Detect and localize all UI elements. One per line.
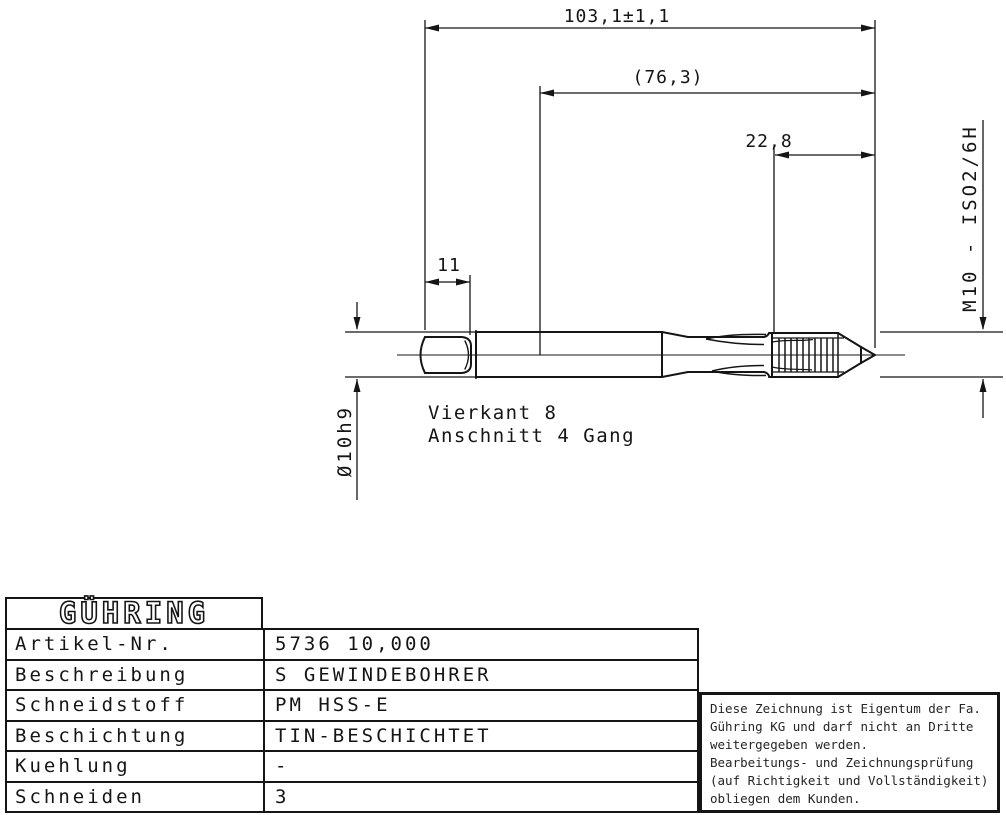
ownership-note: Diese Zeichnung ist Eigentum der Fa. Güh… [699,692,1000,813]
row-value: 5736 10,000 [263,630,697,659]
note-line: Diese Zeichnung ist Eigentum der Fa. [710,700,997,718]
spec-table-grid: Artikel-Nr. 5736 10,000 Beschreibung S G… [5,628,699,813]
row-label: Beschreibung [7,661,263,690]
dim-thread-spec: M10 - ISO2/6H [959,124,981,312]
note-line: Bearbeitungs- und Zeichnungsprüfung [710,754,997,772]
table-row: Kuehlung - [7,750,697,781]
row-value: TIN-BESCHICHTET [263,722,697,751]
row-label: Artikel-Nr. [7,630,263,659]
technical-drawing: 103,1±1,1 (76,3) 22,8 11 M10 - ISO2/6H Ø… [0,0,1006,590]
table-row: Beschreibung S GEWINDEBOHRER [7,659,697,690]
dim-square-length: 11 [437,255,461,276]
spec-table: GÜHRING Artikel-Nr. 5736 10,000 Beschrei… [5,597,699,813]
drawing-sheet: 103,1±1,1 (76,3) 22,8 11 M10 - ISO2/6H Ø… [0,0,1006,815]
row-value: PM HSS-E [263,691,697,720]
table-row: Beschichtung TIN-BESCHICHTET [7,720,697,751]
dim-overall-length: 103,1±1,1 [564,6,671,27]
dim-reference-length: (76,3) [632,67,703,88]
row-value: S GEWINDEBOHRER [263,661,697,690]
row-label: Beschichtung [7,722,263,751]
dim-thread-length: 22,8 [745,131,792,152]
row-label: Schneiden [7,783,263,812]
table-row: Schneidstoff PM HSS-E [7,689,697,720]
row-value: - [263,752,697,781]
row-value: 3 [263,783,697,812]
note-line: weitergegeben werden. [710,736,997,754]
table-row: Artikel-Nr. 5736 10,000 [7,630,697,659]
guehring-logo-box: GÜHRING [5,597,263,630]
dim-shank-diameter: Ø10h9 [334,405,356,477]
table-row: Schneiden 3 [7,781,697,812]
note-line: obliegen dem Kunden. [710,790,997,808]
note-line: (auf Richtigkeit und Vollständigkeit) [710,772,997,790]
note-line: Gühring KG und darf nicht an Dritte [710,718,997,736]
row-label: Schneidstoff [7,691,263,720]
guehring-logo: GÜHRING [59,599,209,628]
label-chamfer-lead: Anschnitt 4 Gang [428,425,635,447]
label-square-drive: Vierkant 8 [428,402,557,424]
row-label: Kuehlung [7,752,263,781]
